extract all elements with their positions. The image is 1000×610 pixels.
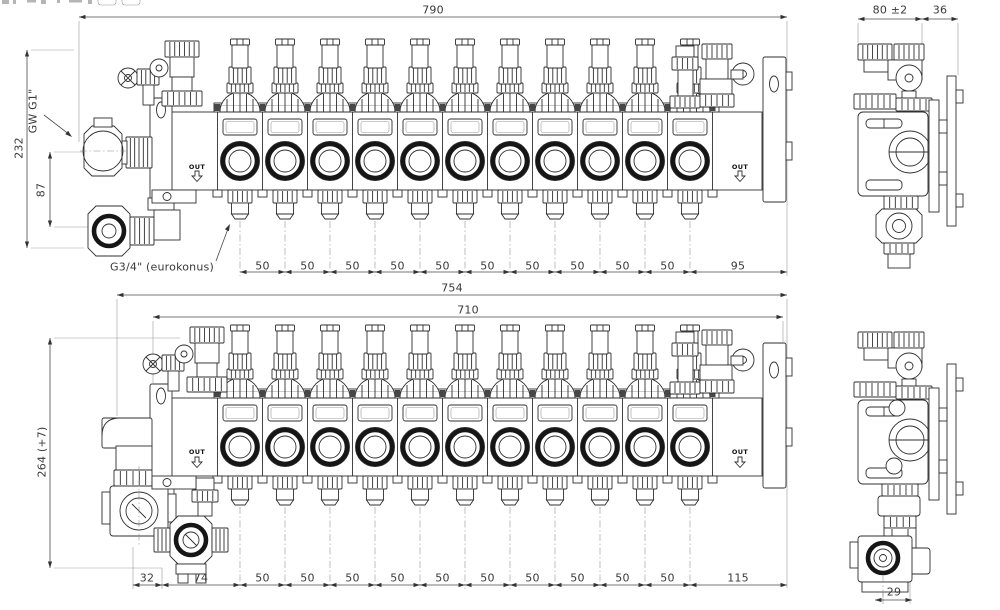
dim-outlet-spacing: 50	[570, 260, 584, 273]
dim-outlet-spacing: 50	[300, 572, 314, 585]
dim-top-height: 232	[13, 137, 26, 159]
dim-outlet-spacing: 50	[390, 260, 404, 273]
dim-outlet-spacing: 50	[660, 260, 674, 273]
technical-drawing-canvas: 790 80 ±2 36 232 87 GW G1" G3/4" (euroko…	[0, 0, 1000, 610]
dim-outlet-spacing: 50	[525, 572, 539, 585]
drawing-linework	[0, 0, 1000, 610]
out-label-top-right: OUT	[732, 163, 748, 171]
dim-outlet-spacing: 50	[255, 260, 269, 273]
dim-top-end-section: 95	[731, 260, 745, 273]
dim-bottom-height: 264 (+7)	[36, 427, 49, 478]
out-label-bottom-right: OUT	[732, 448, 748, 456]
dim-outlet-spacing: 50	[525, 260, 539, 273]
dim-outlet-spacing: 50	[345, 260, 359, 273]
dim-outlet-spacing: 50	[255, 572, 269, 585]
label-outlet-thread: G3/4" (eurokonus)	[110, 261, 214, 274]
dim-bottom-side-pump-offset: 29	[887, 586, 901, 599]
dim-outlet-spacing: 50	[345, 572, 359, 585]
dim-outlet-spacing: 50	[615, 572, 629, 585]
label-supply-thread: GW G1"	[27, 89, 40, 134]
dim-top-port-spacing: 87	[35, 183, 48, 197]
dim-outlet-spacing: 50	[615, 260, 629, 273]
dim-top-side-bracket: 36	[933, 4, 947, 17]
dim-outlet-spacing: 50	[660, 572, 674, 585]
dim-bottom-rail-width: 710	[457, 304, 479, 317]
dim-bottom-offset-1: 32	[140, 572, 154, 585]
dim-outlet-spacing: 50	[435, 260, 449, 273]
dim-outlet-spacing: 50	[300, 260, 314, 273]
dim-bottom-end-section: 115	[727, 572, 749, 585]
dim-bottom-total-width: 754	[441, 282, 463, 295]
out-label-bottom-left: OUT	[189, 448, 205, 456]
dim-bottom-offset-2: 74	[194, 572, 208, 585]
out-label-top-left: OUT	[189, 163, 205, 171]
dim-outlet-spacing: 50	[390, 572, 404, 585]
dim-top-side-depth: 80 ±2	[873, 4, 908, 17]
dim-outlet-spacing: 50	[480, 572, 494, 585]
dim-outlet-spacing: 50	[435, 572, 449, 585]
dim-outlet-spacing: 50	[480, 260, 494, 273]
dim-top-total-width: 790	[422, 4, 444, 17]
dim-outlet-spacing: 50	[570, 572, 584, 585]
